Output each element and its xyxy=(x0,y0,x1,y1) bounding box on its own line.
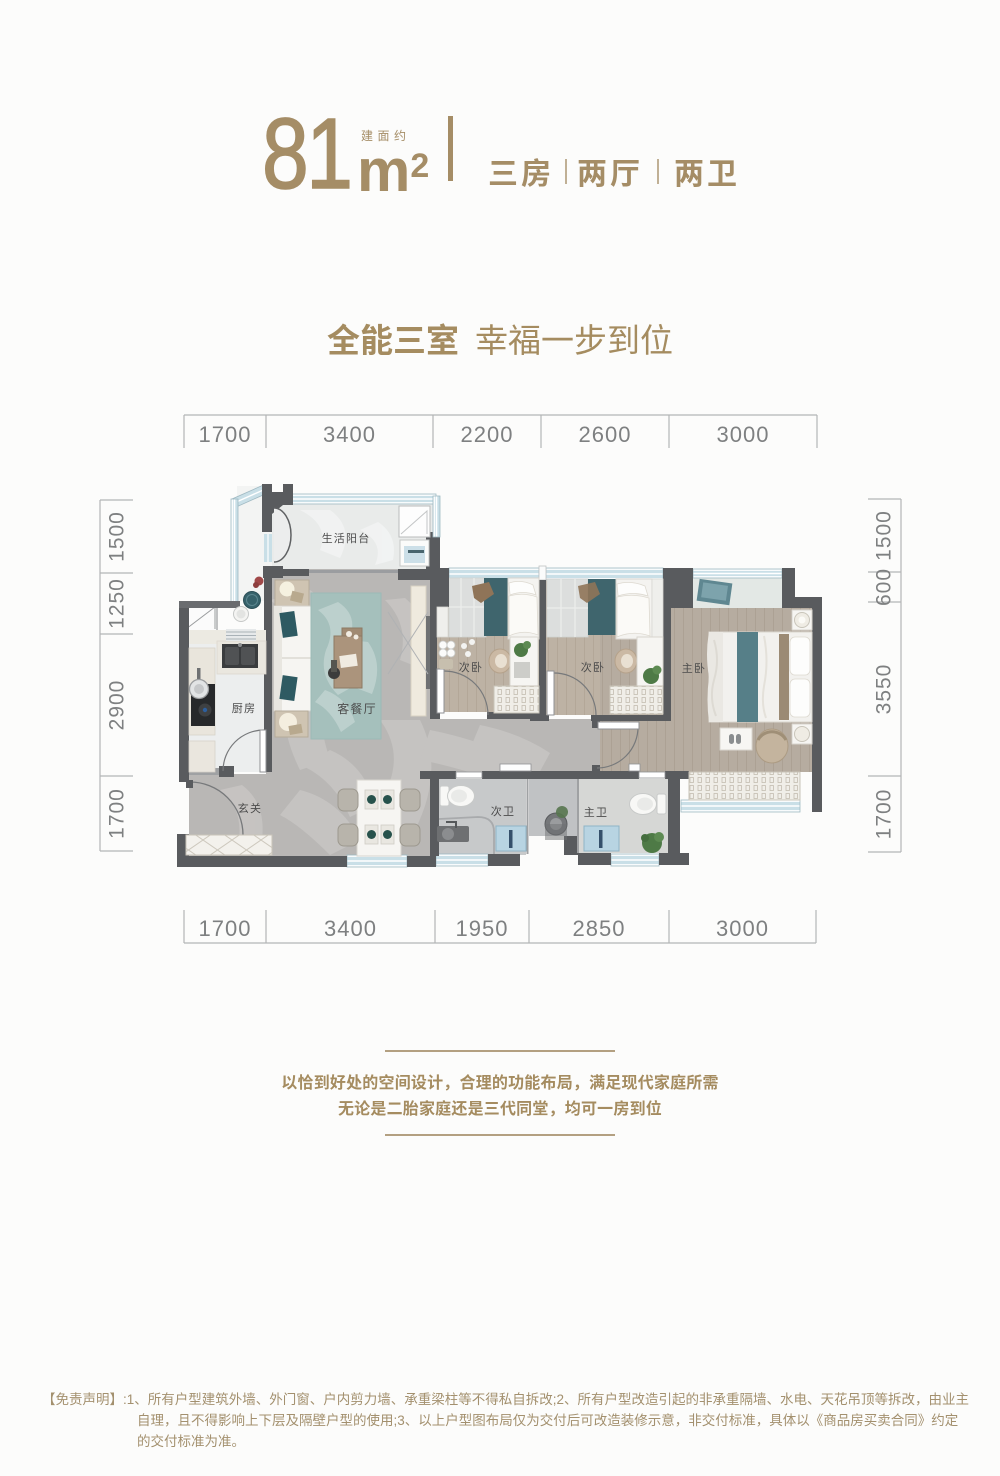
svg-text:600: 600 xyxy=(873,568,896,606)
svg-text:1700: 1700 xyxy=(106,788,129,839)
svg-text:1700: 1700 xyxy=(873,789,896,840)
svg-text:次卧: 次卧 xyxy=(459,660,483,674)
svg-text:客餐厅: 客餐厅 xyxy=(337,701,377,716)
svg-text:1950: 1950 xyxy=(456,916,509,941)
svg-text:1700: 1700 xyxy=(199,916,252,941)
svg-text:3400: 3400 xyxy=(323,422,376,447)
svg-text:2200: 2200 xyxy=(461,422,514,447)
svg-text:3000: 3000 xyxy=(716,916,769,941)
svg-text:2850: 2850 xyxy=(573,916,626,941)
svg-text:1500: 1500 xyxy=(873,510,896,561)
svg-text:主卧: 主卧 xyxy=(682,662,706,675)
svg-text:生活阳台: 生活阳台 xyxy=(322,531,371,545)
svg-text:主卫: 主卫 xyxy=(584,806,608,819)
svg-text:3400: 3400 xyxy=(324,916,377,941)
svg-text:3550: 3550 xyxy=(873,664,896,715)
svg-text:2900: 2900 xyxy=(106,680,129,731)
svg-text:3000: 3000 xyxy=(717,422,770,447)
svg-text:1250: 1250 xyxy=(106,578,129,629)
svg-text:2600: 2600 xyxy=(579,422,632,447)
svg-text:次卫: 次卫 xyxy=(491,804,515,818)
svg-text:厨房: 厨房 xyxy=(232,702,256,715)
svg-text:玄关: 玄关 xyxy=(238,801,262,815)
svg-text:次卧: 次卧 xyxy=(581,660,605,674)
svg-text:1700: 1700 xyxy=(199,422,252,447)
svg-text:1500: 1500 xyxy=(106,511,129,562)
